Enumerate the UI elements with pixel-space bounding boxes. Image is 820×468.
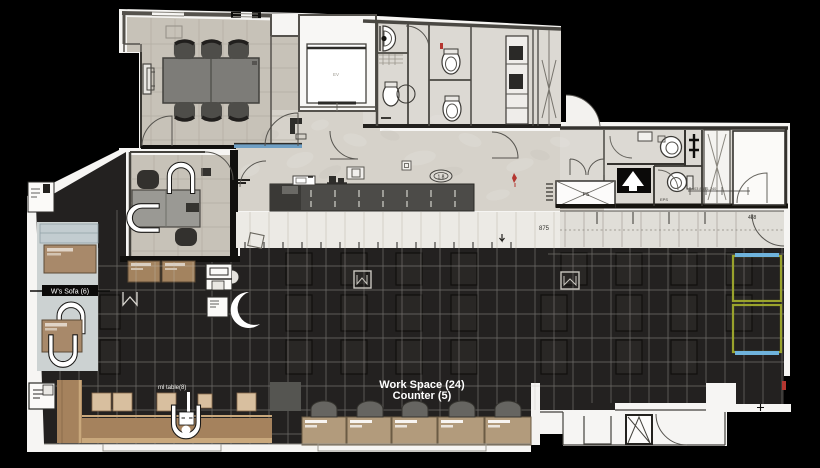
svg-text:EPS: EPS [660, 197, 668, 202]
svg-text:875: 875 [539, 226, 550, 232]
svg-text:PS: PS [583, 192, 590, 198]
svg-text:1.8: 1.8 [438, 175, 445, 181]
svg-text:W's Sofa (6): W's Sofa (6) [51, 289, 89, 296]
svg-text:403 883 1,240: 403 883 1,240 [692, 187, 716, 191]
svg-text:ml table(8): ml table(8) [158, 385, 186, 391]
svg-text:EV: EV [333, 72, 339, 77]
svg-text:Counter (5): Counter (5) [393, 390, 452, 402]
